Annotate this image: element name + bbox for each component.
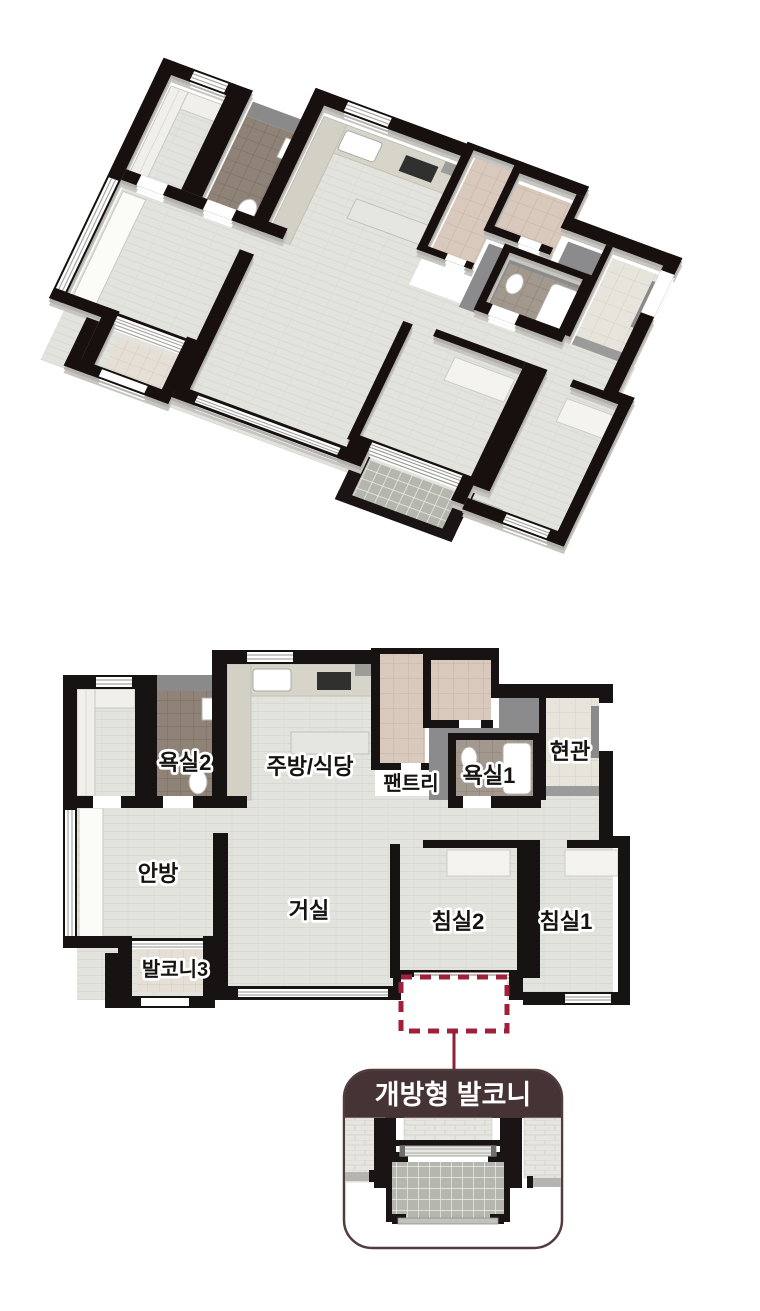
room-label-master-bedroom: 안방 <box>138 861 178 886</box>
room-label-pantry: 팬트리 <box>383 772 438 795</box>
dashed-balcony-outline <box>401 977 507 1031</box>
floor-plan-figure: 욕실2 주방/식당 팬트리 욕실1 현관 안방 거실 침실2 침실1 발코니3 <box>0 0 760 1311</box>
room-label-balcony3: 발코니3 <box>142 958 208 981</box>
floor-plan-2d: 욕실2 주방/식당 팬트리 욕실1 현관 안방 거실 침실2 침실1 발코니3 <box>63 648 630 1008</box>
open-balcony-annotation: 개방형 발코니 <box>344 977 562 1248</box>
room-label-bathroom1: 욕실1 <box>463 763 516 788</box>
callout-title: 개방형 발코니 <box>375 1080 532 1110</box>
room-label-bathroom2: 욕실2 <box>159 750 212 775</box>
room-label-entrance: 현관 <box>550 739 590 764</box>
room-label-bedroom2: 침실2 <box>432 909 485 934</box>
floorplan-page: 욕실2 주방/식당 팬트리 욕실1 현관 안방 거실 침실2 침실1 발코니3 <box>0 0 760 1311</box>
room-label-living-room: 거실 <box>289 898 329 923</box>
room-label-kitchen-dining: 주방/식당 <box>266 754 353 779</box>
iso-view <box>24 34 714 575</box>
balcony-detail-inset: 개방형 발코니 <box>344 1070 562 1248</box>
room-label-bedroom1: 침실1 <box>540 909 593 934</box>
